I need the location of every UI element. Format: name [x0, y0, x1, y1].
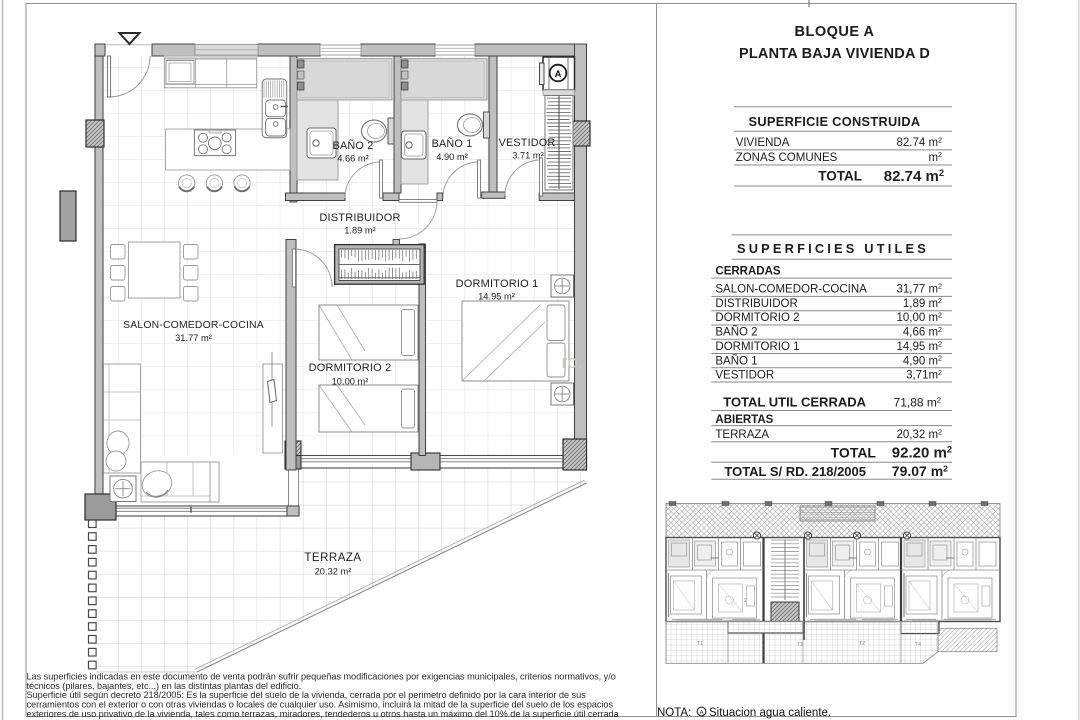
svg-text:DORMITORIO 2: DORMITORIO 2 — [715, 312, 799, 324]
svg-text:ABIERTAS: ABIERTAS — [715, 414, 773, 426]
svg-text:TERRAZA: TERRAZA — [304, 552, 361, 564]
svg-text:T4: T4 — [915, 642, 921, 648]
svg-text:TOTAL S/ RD. 218/2005: TOTAL S/ RD. 218/2005 — [724, 464, 866, 479]
svg-text:79.07 m2: 79.07 m2 — [892, 463, 948, 479]
svg-text:4.90 m²: 4.90 m² — [436, 152, 468, 162]
svg-text:ZONAS COMUNES: ZONAS COMUNES — [736, 152, 838, 164]
svg-text:82.74 m2: 82.74 m2 — [896, 136, 942, 149]
svg-text:T2: T2 — [859, 641, 865, 647]
svg-text:TOTAL UTIL CERRADA: TOTAL UTIL CERRADA — [723, 395, 866, 410]
svg-text:BAÑO 2: BAÑO 2 — [715, 326, 757, 339]
svg-text:T1: T1 — [697, 641, 703, 647]
svg-text:SALON-COMEDOR-COCINA: SALON-COMEDOR-COCINA — [123, 320, 264, 331]
svg-text:SALON-COMEDOR-COCINA: SALON-COMEDOR-COCINA — [715, 283, 867, 295]
svg-text:DORMITORIO 2: DORMITORIO 2 — [309, 362, 392, 374]
svg-text:DISTRIBUIDOR: DISTRIBUIDOR — [715, 298, 797, 310]
svg-text:92.20 m2: 92.20 m2 — [892, 445, 952, 462]
svg-text:A: A — [555, 69, 562, 80]
svg-text:4,66 m2: 4,66 m2 — [903, 326, 942, 339]
svg-text:NOTA:: NOTA: — [657, 707, 691, 719]
svg-text:T3: T3 — [797, 642, 803, 648]
svg-text:14.95 m²: 14.95 m² — [478, 292, 515, 302]
svg-text:PLANTA BAJA VIVIENDA D: PLANTA BAJA VIVIENDA D — [739, 46, 930, 62]
svg-text:VESTIDOR: VESTIDOR — [499, 137, 556, 149]
svg-text:BAÑO 1: BAÑO 1 — [432, 137, 473, 150]
svg-text:BLOQUE A: BLOQUE A — [795, 24, 875, 40]
svg-text:TERRAZA: TERRAZA — [715, 429, 769, 441]
svg-text:31,77 m2: 31,77 m2 — [896, 283, 942, 296]
svg-text:DISTRIBUIDOR: DISTRIBUIDOR — [319, 212, 400, 224]
svg-text:14,95 m2: 14,95 m2 — [896, 340, 942, 353]
svg-text:1.89 m²: 1.89 m² — [344, 226, 376, 236]
svg-text:20,32 m2: 20,32 m2 — [896, 428, 942, 441]
svg-text:Situacion agua caliente.: Situacion agua caliente. — [709, 707, 831, 719]
svg-text:BAÑO 1: BAÑO 1 — [715, 354, 757, 367]
svg-text:71,88 m2: 71,88 m2 — [894, 396, 941, 410]
svg-text:VESTIDOR: VESTIDOR — [715, 370, 774, 382]
svg-text:DORMITORIO 1: DORMITORIO 1 — [715, 341, 799, 353]
svg-text:BAÑO 2: BAÑO 2 — [333, 139, 374, 152]
svg-text:TOTAL: TOTAL — [818, 169, 862, 184]
svg-text:10,00 m2: 10,00 m2 — [896, 312, 942, 325]
svg-text:31.77 m²: 31.77 m² — [175, 333, 212, 343]
svg-text:exteriores de uso privativo de: exteriores de uso privativo de la vivien… — [27, 709, 620, 719]
svg-text:VIVIENDA: VIVIENDA — [736, 137, 790, 149]
svg-text:m2: m2 — [928, 151, 942, 164]
svg-text:1: 1 — [744, 598, 747, 604]
svg-text:A: A — [699, 709, 704, 716]
svg-text:10.00 m²: 10.00 m² — [332, 377, 369, 387]
svg-text:4.66 m²: 4.66 m² — [337, 154, 369, 164]
svg-text:4,90 m2: 4,90 m2 — [903, 355, 942, 368]
svg-text:DORMITORIO 1: DORMITORIO 1 — [456, 278, 539, 290]
svg-text:3.71 m²: 3.71 m² — [512, 151, 544, 161]
svg-text:ro.: ro. — [561, 352, 582, 372]
svg-text:TOTAL: TOTAL — [831, 445, 877, 461]
svg-text:SUPERFICIE CONSTRUIDA: SUPERFICIE CONSTRUIDA — [749, 114, 921, 129]
svg-text:SUPERFICIES UTILES: SUPERFICIES UTILES — [737, 241, 929, 256]
svg-text:82.74 m2: 82.74 m2 — [884, 168, 944, 185]
svg-text:CERRADAS: CERRADAS — [715, 266, 781, 278]
svg-text:20.32 m²: 20.32 m² — [315, 567, 352, 577]
svg-text:1,89 m2: 1,89 m2 — [903, 297, 942, 310]
svg-text:3,71m2: 3,71m2 — [906, 369, 942, 382]
